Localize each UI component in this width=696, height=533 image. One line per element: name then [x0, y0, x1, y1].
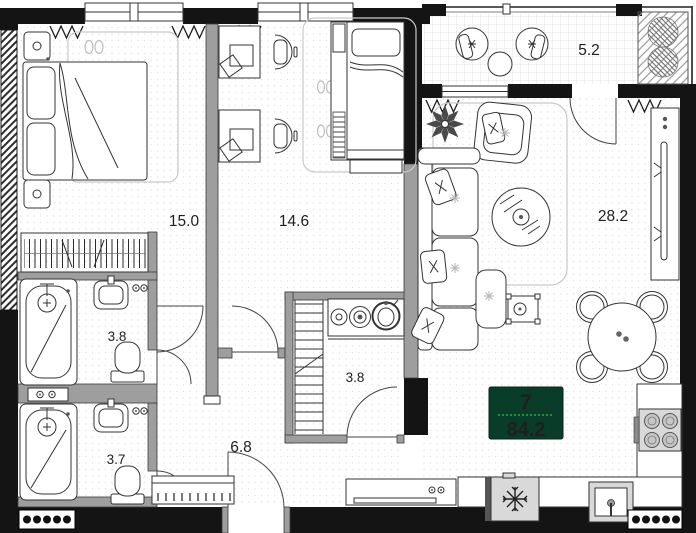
room-area-label-bathroom-1: 3.8: [108, 329, 127, 344]
room-area-label-bathroom-2: 3.7: [107, 452, 126, 467]
balcony-chair-icon: [456, 28, 488, 60]
kitchen-sink-icon: [589, 482, 633, 522]
nightstand-icon: [24, 32, 50, 61]
bed-ladder-icon: [333, 112, 345, 158]
vent-icon: [628, 510, 682, 529]
washbasin-icon: [94, 399, 128, 432]
fridge-icon: [485, 473, 539, 521]
plant-icon: [648, 17, 678, 47]
room-area-label-living: 28.2: [598, 208, 628, 225]
side-table-icon: [506, 294, 540, 324]
room-area-label-kids-room: 14.6: [279, 213, 309, 230]
plant-icon: [426, 105, 464, 143]
room-area-label-utility: 3.8: [346, 370, 365, 385]
unit-number: 7: [520, 391, 532, 414]
bench-icon: [152, 476, 234, 504]
desk-icon: [219, 26, 260, 78]
tv-icon: [661, 142, 667, 260]
unit-info-badge[interactable]: 7 84.2: [489, 387, 563, 441]
vent-icon: [19, 510, 75, 529]
toilet-icon: [111, 466, 144, 504]
floor-plan-page: 15.0: [0, 0, 696, 533]
floor-plan: 15.0: [0, 0, 696, 533]
room-area-label-bedroom: 15.0: [169, 213, 200, 230]
pillow-icon: [420, 249, 447, 283]
double-bed-icon: [23, 62, 147, 180]
balcony-chair-icon: [516, 28, 548, 60]
nightstand-icon: [24, 180, 50, 208]
unit-area: 84.2: [507, 419, 546, 441]
room-area-label-balcony: 5.2: [578, 42, 600, 59]
cabinet-icon: [346, 479, 456, 505]
toilet-icon: [111, 342, 144, 382]
coffee-table-icon: [492, 188, 550, 246]
washbasin-icon: [94, 276, 128, 309]
desk-icon: [219, 110, 260, 162]
bathtub-icon: [20, 404, 77, 500]
window-icon: [85, 3, 183, 21]
balcony-table-icon: [488, 52, 512, 76]
laundry-counter-icon: [328, 299, 404, 339]
bathtub-icon: [20, 279, 77, 385]
tv-stand-icon: [651, 108, 679, 280]
plant-icon: [648, 47, 678, 77]
socket-box-icon: [28, 388, 68, 401]
single-bed-icon: [331, 22, 404, 173]
balcony-window-icon: [442, 86, 508, 97]
dining-table-icon: [577, 292, 668, 383]
room-area-label-hallway: 6.8: [230, 439, 252, 456]
stove-icon: [634, 409, 681, 451]
shaft-hatch: [1, 30, 17, 310]
